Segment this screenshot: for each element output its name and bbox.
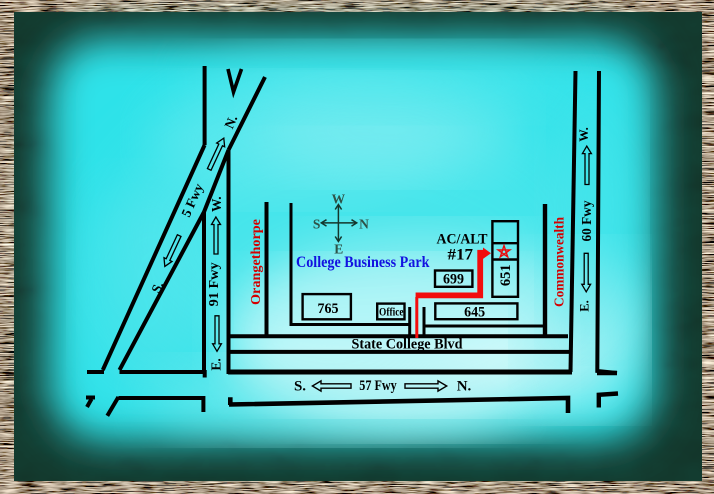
svg-text:60 Fwy: 60 Fwy <box>579 200 594 241</box>
svg-text:Commonwealth: Commonwealth <box>552 217 567 307</box>
svg-text:765: 765 <box>318 301 339 317</box>
svg-text:W.: W. <box>577 127 591 141</box>
svg-text:#17: #17 <box>448 247 474 264</box>
svg-text:S.: S. <box>294 378 306 394</box>
svg-text:645: 645 <box>464 304 485 320</box>
svg-text:S: S <box>313 217 321 232</box>
svg-text:W.: W. <box>209 196 224 212</box>
svg-text:State College Blvd: State College Blvd <box>352 336 463 352</box>
svg-text:91 Fwy: 91 Fwy <box>206 262 221 306</box>
svg-text:E.: E. <box>209 358 224 370</box>
svg-text:Orangethorpe: Orangethorpe <box>248 219 263 305</box>
svg-text:Office: Office <box>379 305 404 319</box>
svg-text:651: 651 <box>498 264 514 286</box>
svg-text:699: 699 <box>443 271 464 287</box>
svg-text:W: W <box>332 192 346 207</box>
svg-text:N: N <box>359 217 369 232</box>
svg-text:College Business Park: College Business Park <box>296 254 430 271</box>
svg-text:AC/ALT: AC/ALT <box>437 232 488 248</box>
svg-text:E.: E. <box>578 300 592 311</box>
svg-text:N.: N. <box>457 378 472 394</box>
svg-text:57 Fwy: 57 Fwy <box>359 378 397 394</box>
